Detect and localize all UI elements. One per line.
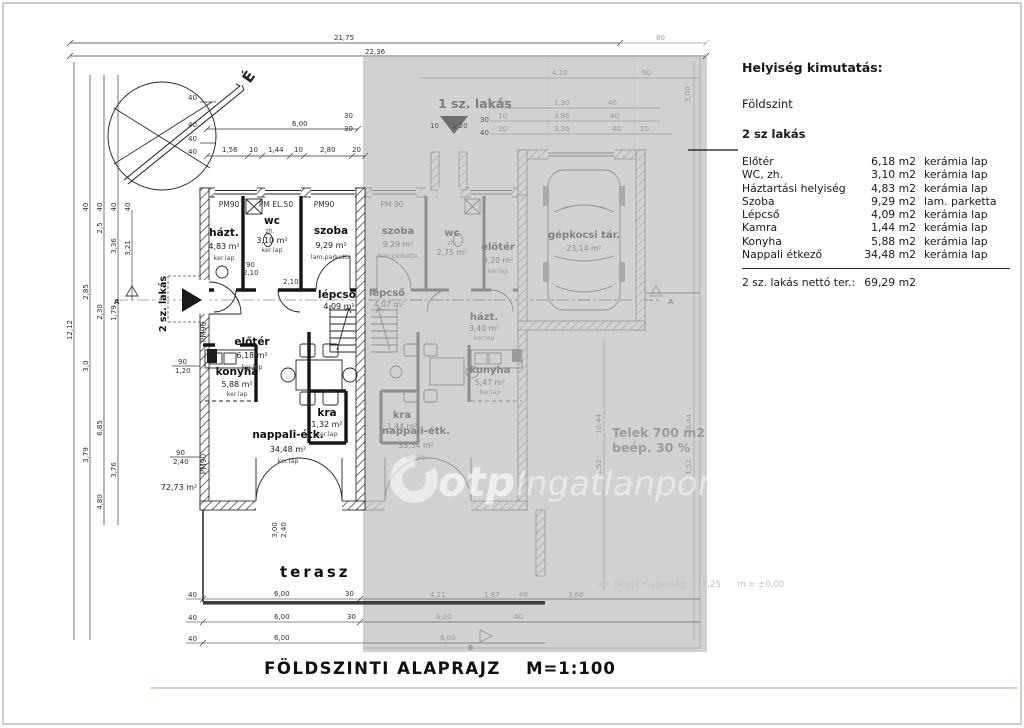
room-finish: lam.parketta xyxy=(378,253,418,260)
level-note: ált. terepi magasság: 117,25 m = ±0,00 xyxy=(598,580,784,590)
room-finish: lam.parketta xyxy=(311,254,351,261)
dim-label: 10 xyxy=(294,146,303,154)
room-finish: ker.lap xyxy=(278,458,299,465)
terasz-label: terasz xyxy=(280,563,351,581)
dim-label: 3,00 xyxy=(271,522,279,538)
room-name: házt. xyxy=(470,311,498,323)
schedule-row: Szoba 9,29 m2 lam. parketta xyxy=(742,195,1010,208)
schedule-room-finish: kerámia lap xyxy=(916,208,1010,221)
dim-label: 40 xyxy=(480,129,489,137)
window-label: PM90 xyxy=(314,200,335,209)
dim-label: 90 xyxy=(176,449,185,457)
dim-label: 3,76 xyxy=(110,462,118,478)
dim-label: 10 xyxy=(640,125,649,133)
dim-label: 90 xyxy=(178,358,187,366)
schedule-room-area: 4,83 m2 xyxy=(860,182,916,195)
dim-label: 40 xyxy=(188,591,197,599)
room-finish: ker.lap xyxy=(227,391,248,398)
section-marker-a-left: A xyxy=(114,298,120,306)
dim-label: 10,44 xyxy=(685,413,693,434)
dim-label: 6,00 xyxy=(292,120,308,128)
schedule-room-area: 5,88 m2 xyxy=(860,235,916,248)
schedule-room-area: 34,48 m2 xyxy=(860,248,916,261)
dim-label: 6,00 xyxy=(274,590,290,598)
room-area: 34,48 m² xyxy=(270,445,306,454)
room-name: konyha xyxy=(216,366,259,378)
schedule-floor: Földszint xyxy=(742,97,1010,111)
window-label: PM90 xyxy=(199,454,208,475)
room-area: 1,32 m² xyxy=(311,420,342,429)
sheet-scale: M=1:100 xyxy=(526,659,616,678)
dim-label: 40 xyxy=(188,614,197,622)
dim-label: 6,00 xyxy=(274,634,290,642)
schedule-title: Helyiség kimutatás: xyxy=(742,60,1010,75)
room-name: nappali-étk. xyxy=(382,425,450,437)
room-sub: zh. xyxy=(265,228,274,235)
dim-label: 6,00 xyxy=(440,634,456,642)
dim-label: 1,79 xyxy=(110,305,118,321)
room-name: kra xyxy=(317,407,336,419)
dim-label: 2,40 xyxy=(280,522,288,538)
unit1-gray-overlay xyxy=(363,57,707,652)
section-marker-a-right: A xyxy=(668,298,674,306)
title-underline xyxy=(150,687,1018,689)
room-name: nappali-étk. xyxy=(252,429,323,441)
dim-label: 40 xyxy=(110,203,118,212)
dim-label: 30 xyxy=(344,125,353,133)
dim-label: 1,20 xyxy=(452,122,468,130)
dim-label: 40 xyxy=(188,121,197,129)
schedule-room-name: Lépcső xyxy=(742,208,860,221)
dim-label: 3,66 xyxy=(568,591,584,599)
dim-label: 20 xyxy=(352,146,361,154)
dim-label: 3,0 xyxy=(82,360,90,371)
dim-label: 40 xyxy=(124,203,132,212)
dim-label: 40 xyxy=(188,148,197,156)
room-area: 3,10 m² xyxy=(256,236,287,245)
room-name: konyha xyxy=(470,365,511,376)
otp-logo-text: otp xyxy=(438,458,515,506)
room-area: 5,47 m² xyxy=(475,378,506,387)
schedule-total-value: 69,29 m2 xyxy=(860,276,916,289)
dim-label: 30 xyxy=(480,116,489,124)
dim-label: 2,10 xyxy=(243,269,259,277)
room-name: szoba xyxy=(314,225,348,237)
dim-label: 30 xyxy=(347,613,356,621)
dim-label: 2,30 xyxy=(96,304,104,320)
schedule-row: Konyha 5,88 m2 kerámia lap xyxy=(742,235,1010,248)
dim-label: 3,36 xyxy=(110,238,118,254)
room-name: lépcső xyxy=(318,289,356,301)
room-name: wc xyxy=(264,215,280,227)
dim-label: 80 xyxy=(656,34,665,42)
dim-label: 90 xyxy=(498,99,507,107)
schedule-row: Háztartási helyiség 4,83 m2 kerámia lap xyxy=(742,182,1010,195)
dim-label: 4,10 xyxy=(552,69,568,77)
room-finish: ker.lap xyxy=(214,255,235,262)
dim-label: 12,12 xyxy=(66,320,74,340)
window-label: PM 90 xyxy=(381,200,404,209)
schedule-room-finish: kerámia lap xyxy=(916,221,1010,234)
schedule-room-finish: kerámia lap xyxy=(916,182,1010,195)
dim-label: 40 xyxy=(82,203,90,212)
compass: É xyxy=(108,67,259,190)
sheet-title: FÖLDSZINTI ALAPRAJZ M=1:100 xyxy=(250,659,630,678)
dim-label: 6,00 xyxy=(436,613,452,621)
dim-label: 40 xyxy=(514,613,523,621)
room-area: 23,14 m² xyxy=(566,244,602,253)
dim-label: 90 xyxy=(642,69,651,77)
dim-label: 1,30 xyxy=(554,99,570,107)
dim-label: 10,44 xyxy=(595,413,603,434)
dim-label: 6,85 xyxy=(96,420,104,436)
dim-label: 40 xyxy=(96,203,104,212)
schedule-room-name: WC, zh. xyxy=(742,168,860,181)
room-area: 3,40 m² xyxy=(469,324,500,333)
dim-label: 10 xyxy=(498,112,507,120)
otp-watermark: otp Ingatlanpont xyxy=(396,458,734,506)
dim-label: 4,11 xyxy=(430,591,446,599)
room-name: házt. xyxy=(209,227,239,239)
room-area: 4,07 m² xyxy=(374,300,405,309)
dim-label: 4,80 xyxy=(96,494,104,510)
window-label: PM EL.50 xyxy=(259,200,293,209)
schedule-room-finish: kerámia lap xyxy=(916,235,1010,248)
room-area: 5,88 m² xyxy=(221,380,252,389)
dim-label: 3,21 xyxy=(124,240,132,256)
dim-label: 3,36 xyxy=(554,125,570,133)
dim-label: 90 xyxy=(246,261,255,269)
schedule-room-finish: kerámia lap xyxy=(916,155,1010,168)
room-name: gépkocsi tár. xyxy=(548,229,620,241)
level-datum: m = ±0,00 xyxy=(737,580,784,590)
window-label: PM90 xyxy=(219,200,240,209)
watermark-suffix: Ingatlanpont xyxy=(516,464,734,504)
schedule-row: Előtér 6,18 m2 kerámia lap xyxy=(742,155,1010,168)
schedule-room-name: Nappali étkező xyxy=(742,248,860,261)
schedule-row: WC, zh. 3,10 m2 kerámia lap xyxy=(742,168,1010,181)
schedule-room-name: Szoba xyxy=(742,195,860,208)
room-name: wc xyxy=(444,228,459,239)
room-sub: zh. xyxy=(447,240,456,247)
room-name: előtér xyxy=(481,241,515,253)
window-label: PM90 xyxy=(199,322,208,343)
dim-label: 1,87 xyxy=(484,591,500,599)
schedule-room-name: Háztartási helyiség xyxy=(742,182,860,195)
dim-label: 3,79 xyxy=(82,447,90,463)
room-area: 9,20 m² xyxy=(483,256,514,265)
schedule-row: Kamra 1,44 m2 kerámia lap xyxy=(742,221,1010,234)
dim-label: 40 xyxy=(519,591,528,599)
schedule-room-area: 4,09 m2 xyxy=(860,208,916,221)
room-finish: ker.lap xyxy=(488,268,509,275)
room-name: lépcső xyxy=(369,287,405,299)
room-schedule: Helyiség kimutatás: Földszint 2 sz lakás… xyxy=(742,60,1010,289)
dim-label: 40 xyxy=(188,94,197,102)
gross-area-label: 72,73 m² xyxy=(161,483,197,492)
room-name: kra xyxy=(393,410,411,421)
dim-label: 5,00 xyxy=(684,86,692,102)
room-finish: ker.lap xyxy=(480,389,501,396)
room-area: 4,83 m² xyxy=(208,242,239,251)
unit2-label: 2 sz. lakás xyxy=(158,276,169,332)
schedule-room-area: 1,44 m2 xyxy=(860,221,916,234)
schedule-total-label: 2 sz. lakás nettó ter.: xyxy=(742,276,860,289)
schedule-room-area: 9,29 m2 xyxy=(860,195,916,208)
schedule-room-area: 3,10 m2 xyxy=(860,168,916,181)
dim-label: 1,44 xyxy=(268,146,284,154)
room-area: 9,29 m² xyxy=(383,240,414,249)
dim-label: 10 xyxy=(430,122,439,130)
dim-label: 2,85 xyxy=(82,284,90,300)
room-area: 6,18 m² xyxy=(236,351,267,360)
dim-label: 1,20 xyxy=(175,367,191,375)
dim-label: 30 xyxy=(344,112,353,120)
level-note-text: ált. terepi magasság: 117,25 xyxy=(598,580,721,590)
schedule-room-finish: kerámia lap xyxy=(916,168,1010,181)
dim-label: 1,56 xyxy=(222,146,238,154)
schedule-room-name: Konyha xyxy=(742,235,860,248)
unit2-entrance-arrow xyxy=(182,288,202,312)
room-name: előtér xyxy=(234,336,270,348)
dim-label: 3,86 xyxy=(554,112,570,120)
section-marker-b: B xyxy=(468,644,473,652)
dim-label: 30 xyxy=(498,125,507,133)
dim-label: 40 xyxy=(188,635,197,643)
dim-label: 10 xyxy=(249,146,258,154)
schedule-room-finish: lam. parketta xyxy=(916,195,1010,208)
dim-label: 40 xyxy=(612,125,621,133)
room-area: 33,34 m² xyxy=(398,441,434,450)
schedule-row: Lépcső 4,09 m2 kerámia lap xyxy=(742,208,1010,221)
room-area: 2,75 m² xyxy=(437,248,468,257)
dim-label: 2,5 xyxy=(96,222,104,233)
room-name: szoba xyxy=(382,226,415,237)
room-area: 4,09 m² xyxy=(323,302,354,311)
dim-label: 21,75 xyxy=(334,34,354,42)
schedule-room-name: Kamra xyxy=(742,221,860,234)
schedule-unit: 2 sz lakás xyxy=(742,127,1010,141)
dim-label: 6,00 xyxy=(274,613,290,621)
schedule-room-finish: kerámia lap xyxy=(916,248,1010,261)
dim-label: 2,10 xyxy=(283,278,299,286)
schedule-total-row: 2 sz. lakás nettó ter.: 69,29 m2 xyxy=(742,268,1010,289)
schedule-room-area: 6,18 m2 xyxy=(860,155,916,168)
dim-label: 2,40 xyxy=(173,458,189,466)
site-note-line2: beép. 30 % xyxy=(612,440,691,455)
windows xyxy=(215,188,355,198)
dim-label: 22,36 xyxy=(365,48,386,56)
schedule-rows: Előtér 6,18 m2 kerámia lap WC, zh. 3,10 … xyxy=(742,155,1010,261)
room-finish: ker.lap xyxy=(474,335,495,342)
floor-plan-sheet: É A A xyxy=(0,0,1024,728)
dim-label: 40 xyxy=(188,135,197,143)
dim-label: 2,80 xyxy=(320,146,336,154)
dim-label: 40 xyxy=(610,112,619,120)
room-area: 9,29 m² xyxy=(315,241,346,250)
north-label: É xyxy=(238,67,259,86)
schedule-row: Nappali étkező 34,48 m2 kerámia lap xyxy=(742,248,1010,261)
sheet-title-text: FÖLDSZINTI ALAPRAJZ xyxy=(264,659,501,678)
room-finish: ker.lap xyxy=(262,247,283,254)
dim-label: 30 xyxy=(345,590,354,598)
schedule-room-name: Előtér xyxy=(742,155,860,168)
dim-label: 40 xyxy=(608,99,617,107)
